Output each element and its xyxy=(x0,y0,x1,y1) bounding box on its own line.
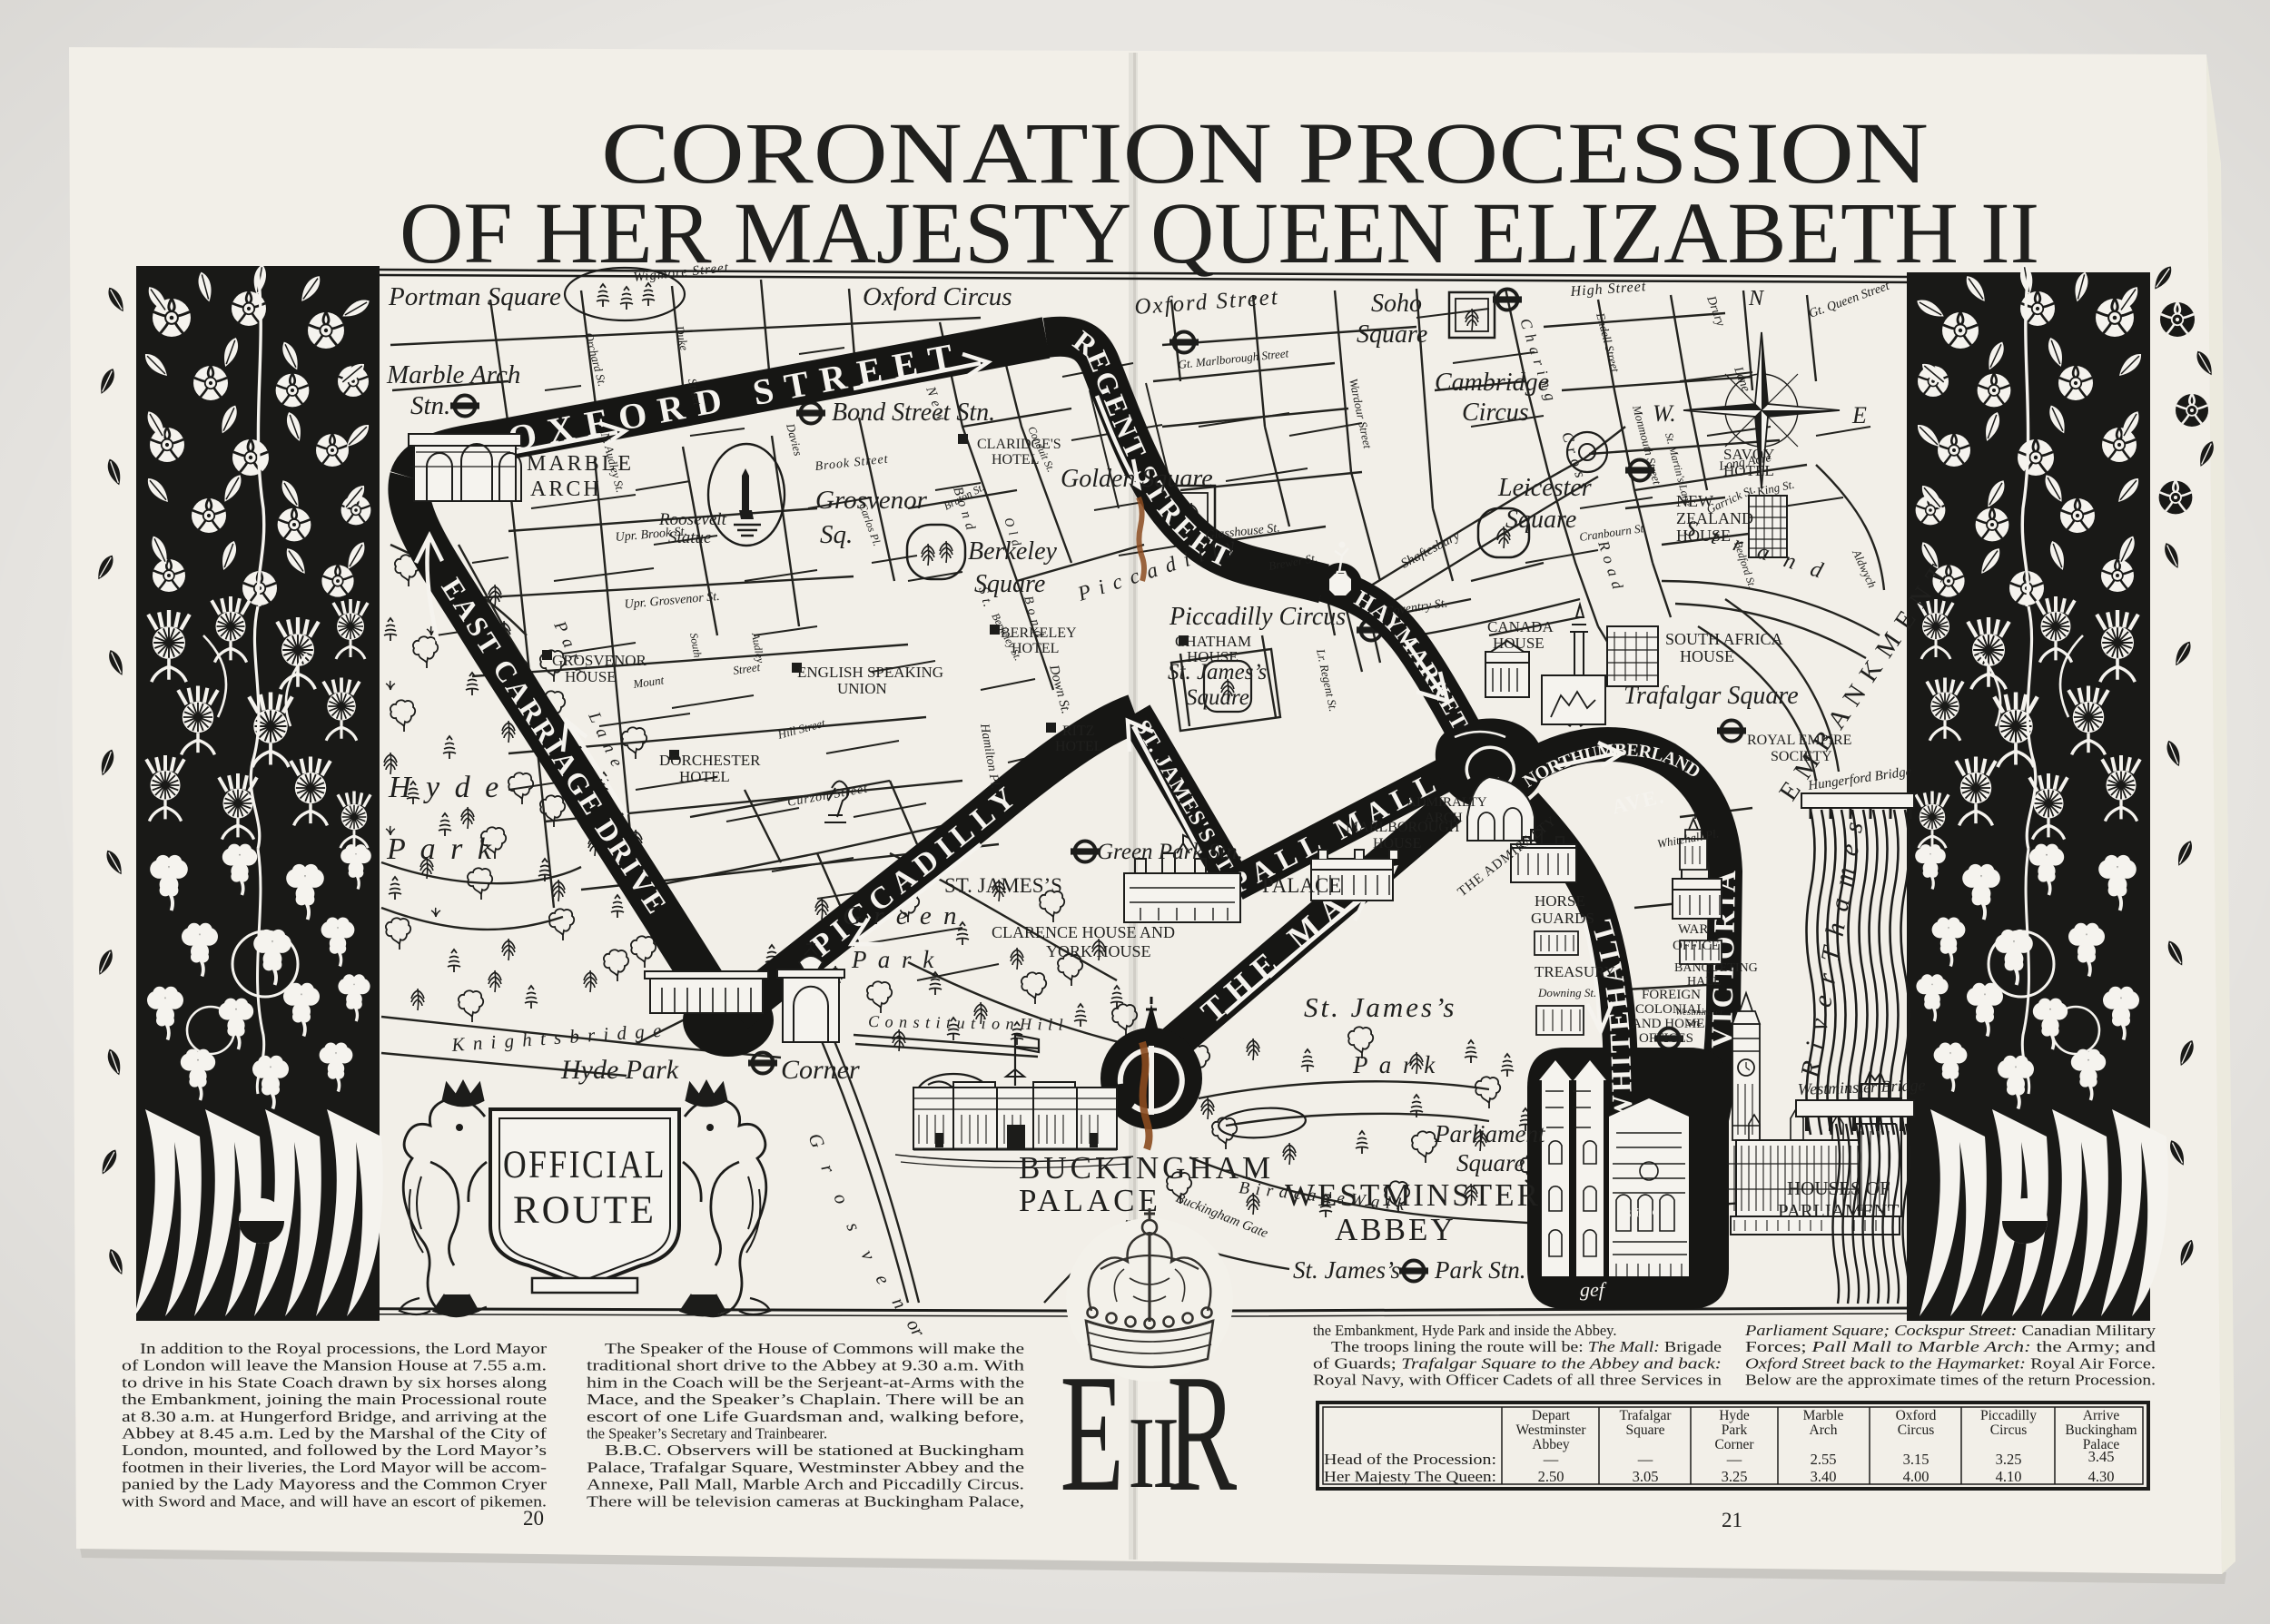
svg-text:the Speaker’s Secretary and Tr: the Speaker’s Secretary and Trainbearer. xyxy=(587,1425,827,1442)
svg-text:ADMIRALTY: ADMIRALTY xyxy=(1406,795,1487,810)
svg-text:HOTEL: HOTEL xyxy=(679,768,730,785)
svg-text:Cambridge: Cambridge xyxy=(1435,369,1549,397)
svg-text:Arch: Arch xyxy=(1810,1422,1838,1438)
svg-text:Parliament: Parliament xyxy=(1434,1120,1546,1147)
svg-text:Forces; Pall Mall to Marble Ar: Forces; Pall Mall to Marble Arch: the Ar… xyxy=(1745,1338,2156,1355)
svg-text:panied by the Lady Mayoress an: panied by the Lady Mayoress and the Comm… xyxy=(122,1476,548,1493)
svg-text:CLARENCE HOUSE AND: CLARENCE HOUSE AND xyxy=(992,923,1175,941)
svg-text:Square: Square xyxy=(1625,1422,1664,1438)
svg-text:Westminster: Westminster xyxy=(1515,1422,1586,1438)
svg-text:traditional short drive to the: traditional short drive to the Abbey at … xyxy=(587,1357,1024,1374)
svg-text:St. James’s: St. James’s xyxy=(1168,660,1267,684)
svg-text:the Embankment, Hyde Park and: the Embankment, Hyde Park and inside the… xyxy=(1313,1322,1616,1339)
svg-text:Stn.: Stn. xyxy=(410,391,450,420)
svg-text:St. James’s: St. James’s xyxy=(1304,991,1456,1023)
svg-text:BUCKINGHAM: BUCKINGHAM xyxy=(1019,1150,1274,1186)
svg-text:Annexe, Pall Mall, Marble Arch: Annexe, Pall Mall, Marble Arch and Picca… xyxy=(587,1476,1024,1493)
svg-text:OFFICE: OFFICE xyxy=(1673,939,1720,953)
svg-text:4.10: 4.10 xyxy=(1996,1468,2022,1485)
svg-text:N: N xyxy=(1748,287,1765,310)
svg-text:Square: Square xyxy=(1505,506,1576,534)
svg-text:footmen in their liveries, the: footmen in their liveries, the Lord Mayo… xyxy=(122,1459,547,1476)
svg-text:Portman Square: Portman Square xyxy=(388,282,561,311)
svg-text:Head of the Procession:: Head of the Procession: xyxy=(1324,1451,1496,1468)
svg-text:Golden Square: Golden Square xyxy=(1061,465,1213,493)
svg-text:PALACE: PALACE xyxy=(1019,1183,1161,1218)
svg-text:Trafalgar Square: Trafalgar Square xyxy=(1624,682,1799,710)
svg-text:P a r k: P a r k xyxy=(851,946,936,973)
svg-text:4.00: 4.00 xyxy=(1903,1468,1929,1485)
svg-text:Royal Navy, with Officer Cadet: Royal Navy, with Officer Cadets of all t… xyxy=(1313,1372,1722,1389)
svg-text:4.30: 4.30 xyxy=(2088,1468,2115,1485)
svg-text:CANADA: CANADA xyxy=(1487,618,1554,635)
svg-text:him in the Coach will be the S: him in the Coach will be the Serjeant-at… xyxy=(587,1373,1024,1391)
svg-text:to drive in his State Coach dr: to drive in his State Coach drawn by six… xyxy=(122,1373,547,1391)
svg-text:Square: Square xyxy=(1357,320,1427,349)
svg-text:Marble Arch: Marble Arch xyxy=(386,360,520,389)
svg-text:BANQUETING: BANQUETING xyxy=(1674,961,1758,975)
svg-text:HOUSES OF: HOUSES OF xyxy=(1787,1177,1890,1199)
svg-text:Depart: Depart xyxy=(1532,1408,1571,1423)
svg-text:UNION: UNION xyxy=(837,680,887,697)
svg-text:There will be television camer: There will be television cameras at Buck… xyxy=(587,1492,1024,1510)
svg-text:Trafalgar: Trafalgar xyxy=(1619,1408,1672,1423)
svg-text:2.55: 2.55 xyxy=(1811,1451,1837,1468)
svg-text:Oxford: Oxford xyxy=(1896,1408,1937,1423)
svg-text:Arrive: Arrive xyxy=(2083,1408,2120,1423)
svg-text:G r e e n: G r e e n xyxy=(843,901,959,930)
svg-text:E: E xyxy=(1060,1340,1123,1527)
svg-text:the Embankment, joining the ma: the Embankment, joining the main Process… xyxy=(122,1391,547,1408)
svg-text:Circus: Circus xyxy=(1990,1422,2027,1438)
svg-text:2.50: 2.50 xyxy=(1538,1468,1564,1485)
svg-text:—: — xyxy=(1637,1451,1653,1468)
svg-text:3.45: 3.45 xyxy=(2088,1448,2115,1465)
svg-text:Buckingham: Buckingham xyxy=(2065,1422,2137,1438)
svg-text:—: — xyxy=(1543,1451,1559,1468)
svg-text:Mace, and the Speaker’s Chapla: Mace, and the Speaker’s Chaplain. There … xyxy=(587,1391,1024,1408)
svg-text:of London will leave the Mansi: of London will leave the Mansion House a… xyxy=(122,1357,547,1374)
svg-text:R: R xyxy=(1167,1340,1237,1527)
svg-text:Hyde Park: Hyde Park xyxy=(560,1055,679,1085)
svg-text:Westminster: Westminster xyxy=(1675,1007,1724,1018)
svg-text:ROUTE: ROUTE xyxy=(513,1189,656,1232)
svg-text:21: 21 xyxy=(1722,1509,1742,1531)
svg-text:Hyde: Hyde xyxy=(1719,1408,1750,1423)
svg-text:Square: Square xyxy=(1186,685,1249,710)
svg-text:3.25: 3.25 xyxy=(1996,1451,2022,1468)
svg-text:P a r k: P a r k xyxy=(386,832,495,866)
svg-text:ENGLISH SPEAKING: ENGLISH SPEAKING xyxy=(797,664,943,681)
svg-text:E: E xyxy=(1851,402,1867,428)
svg-text:YORK HOUSE: YORK HOUSE xyxy=(1046,942,1151,960)
svg-text:ARCH: ARCH xyxy=(530,477,602,501)
svg-text:Green Park Stn.: Green Park Stn. xyxy=(1097,840,1243,864)
svg-text:Park: Park xyxy=(1722,1422,1748,1438)
svg-text:escort of one Life Guardsman a: escort of one Life Guardsman and, walkin… xyxy=(587,1408,1024,1425)
svg-text:HOTEL: HOTEL xyxy=(1055,739,1102,754)
svg-text:Oxford Circus: Oxford Circus xyxy=(863,282,1012,311)
svg-text:3.15: 3.15 xyxy=(1903,1451,1929,1468)
svg-text:Square: Square xyxy=(1456,1149,1525,1176)
svg-text:Circus: Circus xyxy=(1462,399,1529,427)
svg-text:London, mounted, and followed: London, mounted, and followed by the Lor… xyxy=(122,1442,547,1459)
svg-text:Palace, Trafalgar Square, West: Palace, Trafalgar Square, Westminster Ab… xyxy=(587,1459,1024,1476)
svg-text:Sq.: Sq. xyxy=(820,520,853,549)
svg-text:Oxford Street back to the Haym: Oxford Street back to the Haymarket: Roy… xyxy=(1745,1354,2156,1372)
svg-text:—: — xyxy=(1726,1451,1742,1468)
svg-text:WAR: WAR xyxy=(1678,922,1708,937)
svg-text:FOREIGN: FOREIGN xyxy=(1642,988,1701,1002)
svg-text:Stn.: Stn. xyxy=(1686,1018,1702,1029)
svg-text:DORCHESTER: DORCHESTER xyxy=(659,752,761,769)
svg-text:HOUSE: HOUSE xyxy=(1493,635,1545,652)
svg-text:Piccadilly Circus: Piccadilly Circus xyxy=(1169,603,1346,631)
svg-text:PARLIAMENT: PARLIAMENT xyxy=(1778,1200,1900,1222)
svg-text:HORSE: HORSE xyxy=(1535,892,1585,910)
svg-text:OFFICES: OFFICES xyxy=(1639,1031,1693,1046)
svg-text:St. James’s: St. James’s xyxy=(1293,1256,1400,1284)
svg-text:SOUTH AFRICA: SOUTH AFRICA xyxy=(1665,630,1783,648)
svg-text:ARCH: ARCH xyxy=(1425,811,1463,825)
svg-text:WESTMINSTER: WESTMINSTER xyxy=(1285,1177,1541,1213)
svg-text:H y d e: H y d e xyxy=(388,771,502,804)
svg-text:HALL: HALL xyxy=(1687,975,1721,989)
svg-text:with Sword and Mace, and will: with Sword and Mace, and will have an es… xyxy=(122,1492,547,1510)
svg-text:Piccadilly: Piccadilly xyxy=(1980,1408,2037,1423)
svg-text:Abbey at 8.45 a.m. Led by the: Abbey at 8.45 a.m. Led by the Marshal of… xyxy=(122,1425,548,1442)
svg-text:RITZ: RITZ xyxy=(1062,723,1095,739)
svg-text:HOUSE: HOUSE xyxy=(1373,836,1421,851)
svg-text:Below are the approximate time: Below are the approximate times of the r… xyxy=(1745,1372,2156,1389)
svg-text:3.40: 3.40 xyxy=(1811,1468,1837,1485)
svg-text:In addition to the Royal proce: In addition to the Royal processions, th… xyxy=(140,1340,548,1357)
svg-text:Soho: Soho xyxy=(1371,290,1422,318)
svg-text:20: 20 xyxy=(523,1507,544,1530)
svg-text:Circus: Circus xyxy=(1898,1422,1934,1438)
svg-text:B.B.C. Observers will be stati: B.B.C. Observers will be stationed at Bu… xyxy=(605,1442,1024,1459)
svg-text:OF HER MAJESTY QUEEN ELIZABETH: OF HER MAJESTY QUEEN ELIZABETH II xyxy=(400,184,2039,281)
svg-text:GUARDS: GUARDS xyxy=(1531,910,1594,927)
svg-text:HOTEL: HOTEL xyxy=(992,452,1039,468)
svg-text:Bond Street Stn.: Bond Street Stn. xyxy=(832,399,995,427)
svg-text:gef: gef xyxy=(1580,1278,1607,1301)
svg-text:Downing St.: Downing St. xyxy=(1537,986,1596,999)
svg-text:W.: W. xyxy=(1653,400,1676,427)
svg-text:HOUSE: HOUSE xyxy=(1680,647,1734,665)
svg-text:PALACE: PALACE xyxy=(1262,874,1341,897)
svg-text:The Speaker of the House of Co: The Speaker of the House of Commons will… xyxy=(605,1340,1024,1357)
svg-text:C o n s t i t u t i o n H i: C o n s t i t u t i o n H i l l xyxy=(868,1012,1064,1034)
svg-text:TREASURY: TREASURY xyxy=(1535,963,1615,980)
svg-text:ST. JAMES’S: ST. JAMES’S xyxy=(944,874,1062,897)
svg-text:3.05: 3.05 xyxy=(1633,1468,1659,1485)
svg-text:ABBEY: ABBEY xyxy=(1335,1212,1456,1247)
svg-text:Parliament Square; Cockspur St: Parliament Square; Cockspur Street: Cana… xyxy=(1744,1322,2156,1339)
svg-text:Marble: Marble xyxy=(1803,1408,1844,1423)
svg-text:of Guards; Trafalgar Square to: of Guards; Trafalgar Square to the Abbey… xyxy=(1313,1354,1722,1372)
svg-text:The troops lining the route wi: The troops lining the route will be: The… xyxy=(1331,1338,1722,1355)
svg-text:P a r k: P a r k xyxy=(1352,1051,1437,1078)
svg-text:Park Stn.: Park Stn. xyxy=(1434,1256,1526,1284)
svg-text:at 8.30 a.m. at Hungerford Bri: at 8.30 a.m. at Hungerford Bridge, and a… xyxy=(122,1408,547,1425)
svg-text:Her Majesty The Queen:: Her Majesty The Queen: xyxy=(1324,1468,1496,1485)
svg-text:3.25: 3.25 xyxy=(1722,1468,1748,1485)
svg-text:Corner: Corner xyxy=(781,1055,860,1085)
svg-text:OFFICIAL: OFFICIAL xyxy=(503,1144,666,1186)
